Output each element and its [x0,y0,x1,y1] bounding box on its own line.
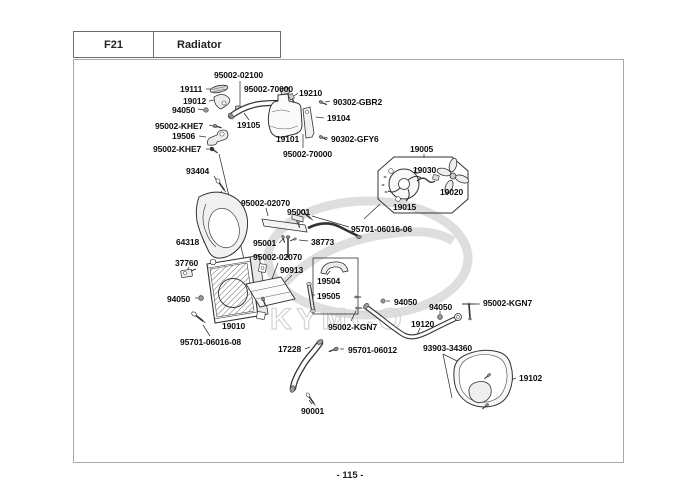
label-19506: 19506 [172,131,195,141]
label-90001: 90001 [301,406,324,416]
label-19105: 19105 [237,120,260,130]
label-17228: 17228 [278,344,301,354]
label-90302-gfy6: 90302-GFY6 [331,134,379,144]
label-37760: 37760 [175,258,198,268]
label-19101: 19101 [276,134,299,144]
label-94050-d: 94050 [429,302,452,312]
label-19504: 19504 [317,276,340,286]
label-64318: 64318 [176,237,199,247]
label-19020: 19020 [440,187,463,197]
label-95001-b: 95001 [253,238,276,248]
label-90913: 90913 [280,265,303,275]
label-19102: 19102 [519,373,542,383]
label-19005: 19005 [410,144,433,154]
label-95002-02100: 95002-02100 [214,70,263,80]
label-95002-kgn7-right: 95002-KGN7 [483,298,532,308]
part-labels-layer: 95002-02100 19111 95002-70000 19210 9030… [0,0,700,495]
label-95002-kgn7-left: 95002-KGN7 [328,322,377,332]
label-38773: 38773 [311,237,334,247]
label-19120: 19120 [411,319,434,329]
label-95002-02070-b: 95002-02070 [253,252,302,262]
label-19030: 19030 [413,165,436,175]
label-93404: 93404 [186,166,209,176]
label-95002-02070-a: 95002-02070 [241,198,290,208]
label-90302-gbr2: 90302-GBR2 [333,97,382,107]
label-93903-34360: 93903-34360 [423,343,472,353]
label-94050-a: 94050 [172,105,195,115]
label-94050-c: 94050 [394,297,417,307]
label-95002-70000-b: 95002-70000 [283,149,332,159]
label-95701-06016-08: 95701-06016-08 [180,337,241,347]
manual-page: F21 Radiator KY [0,0,700,495]
label-94050-b: 94050 [167,294,190,304]
label-19104: 19104 [327,113,350,123]
label-95001-a: 95001 [287,207,310,217]
label-95002-khe7-a: 95002-KHE7 [155,121,203,131]
label-19111: 19111 [180,84,202,94]
label-19505: 19505 [317,291,340,301]
label-95701-06016-06: 95701-06016-06 [351,224,412,234]
label-95002-70000-a: 95002-70000 [244,84,293,94]
label-19210: 19210 [299,88,322,98]
label-95701-06012: 95701-06012 [348,345,397,355]
label-19015: 19015 [393,202,416,212]
label-95002-khe7-b: 95002-KHE7 [153,144,201,154]
label-19010: 19010 [222,321,245,331]
